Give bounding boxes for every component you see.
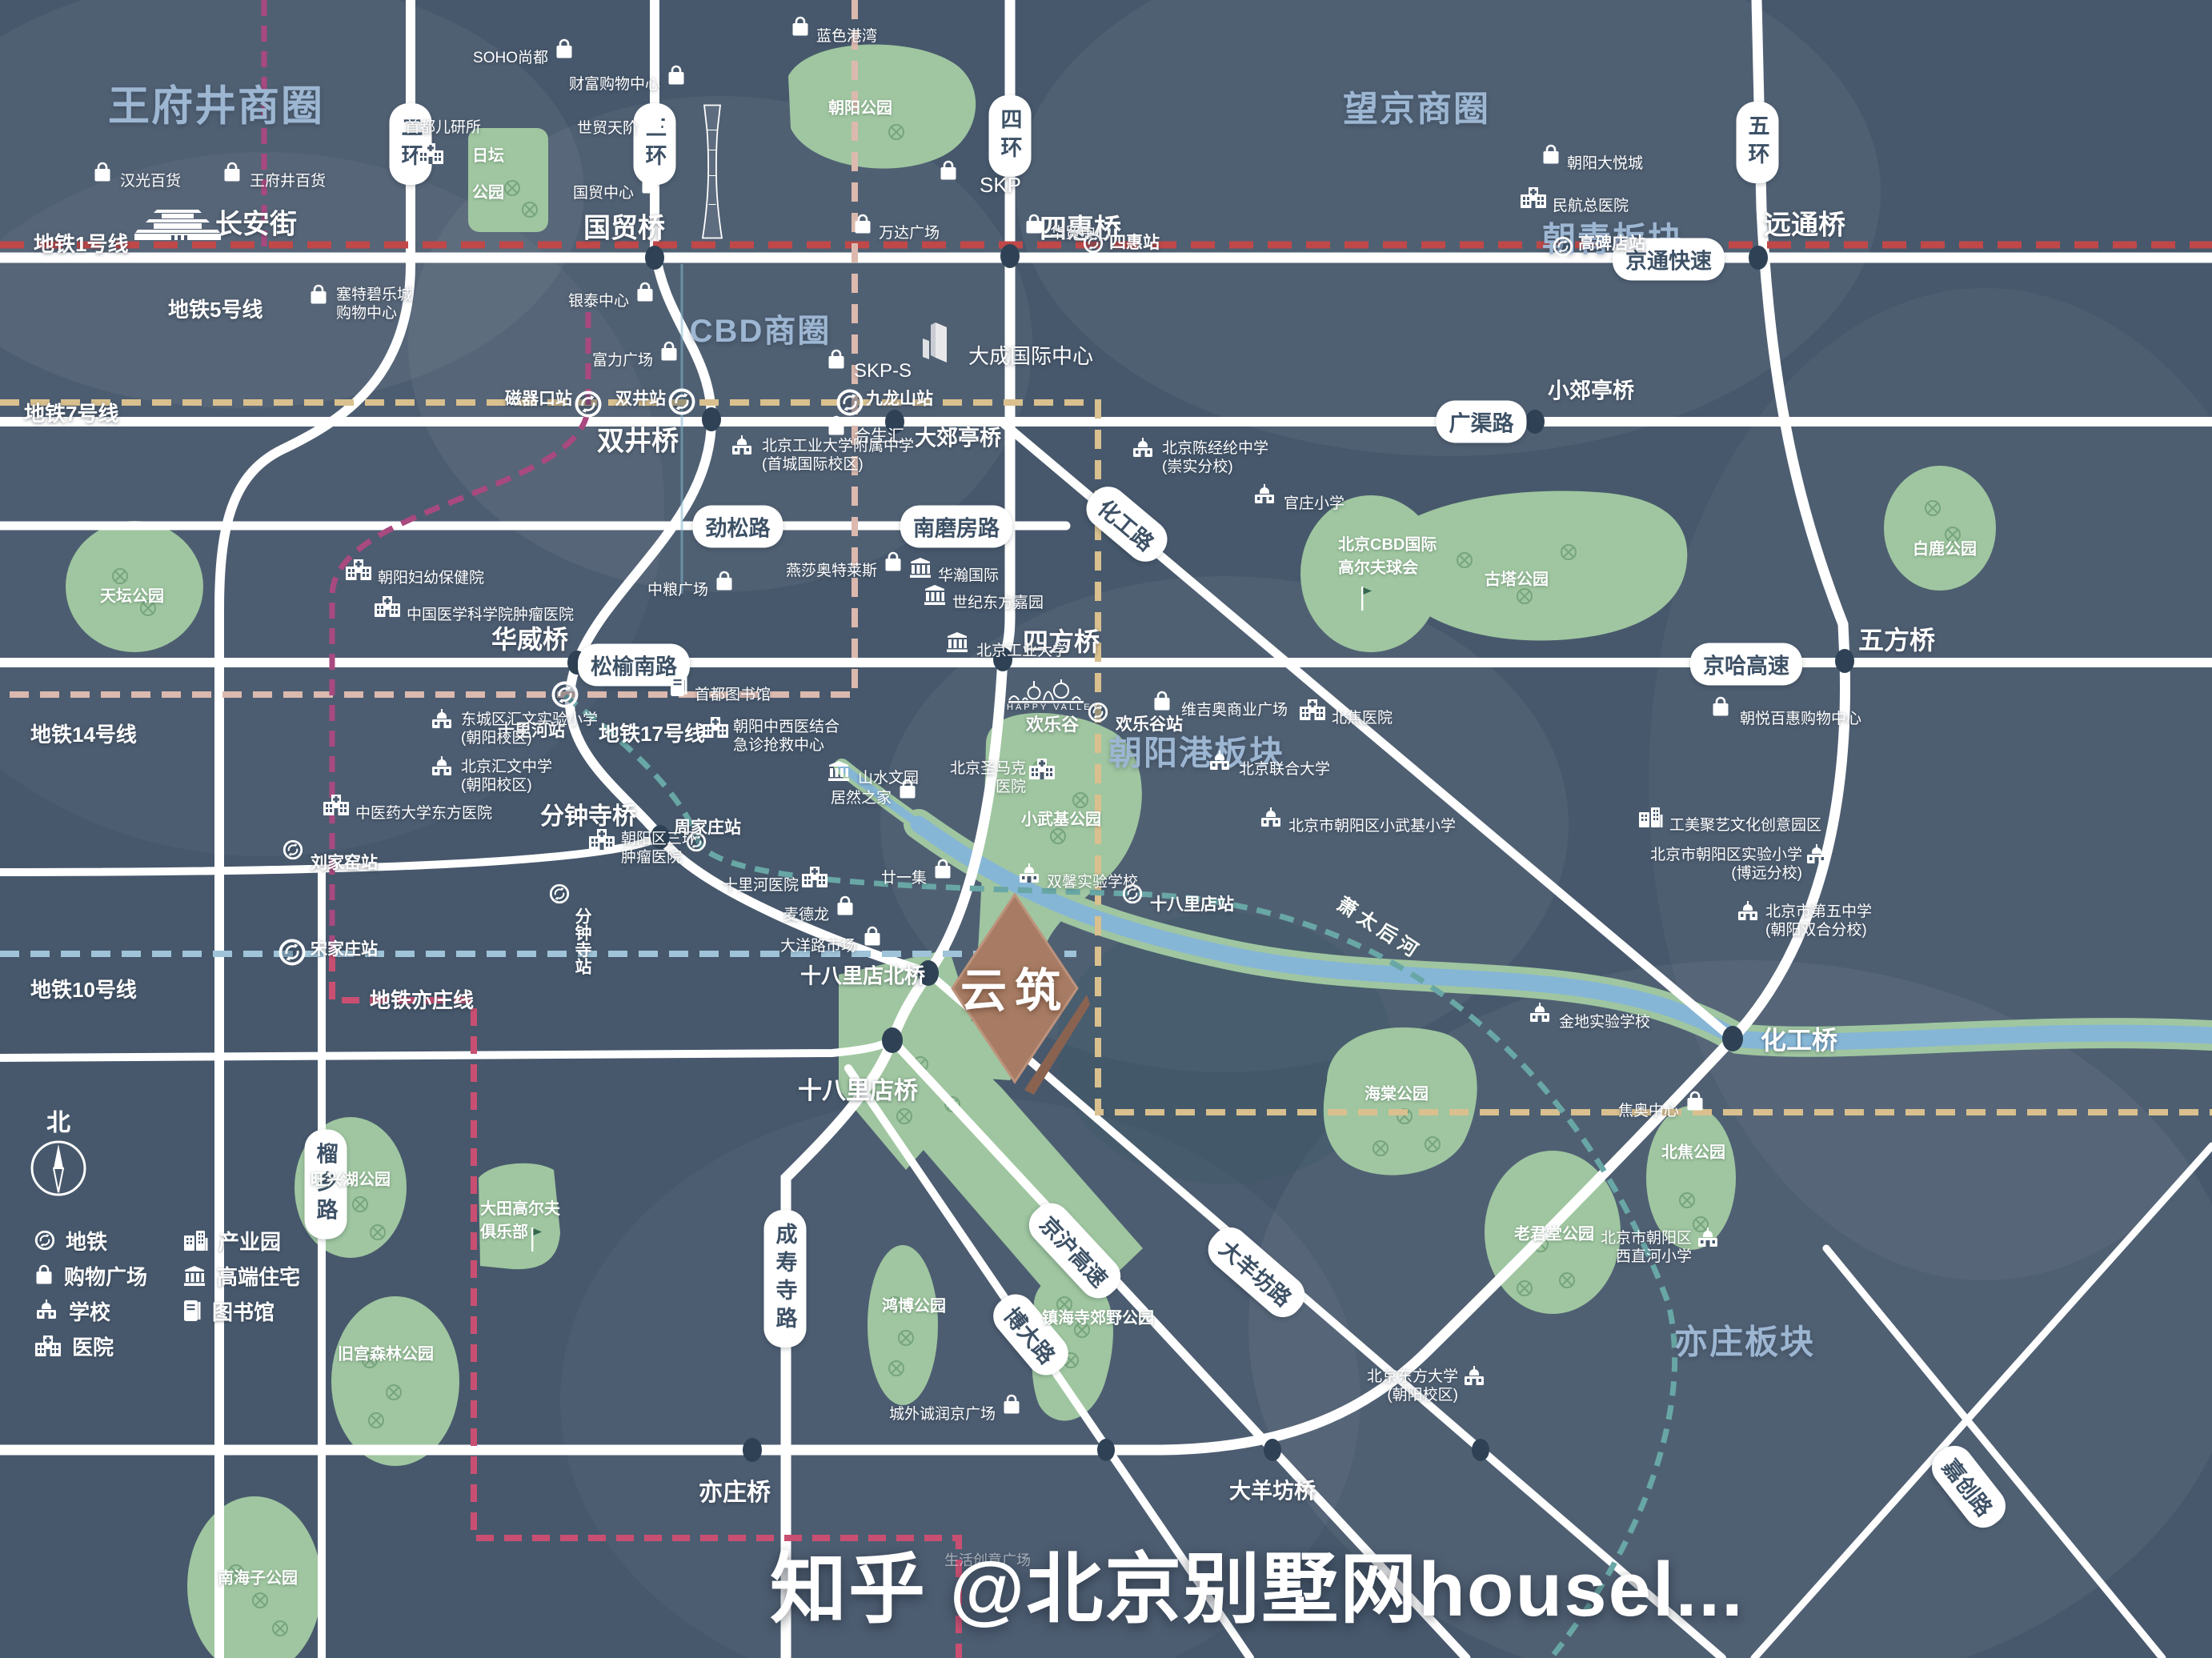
poi-label: 蓝色港湾	[816, 28, 877, 46]
station-label: 双井站	[615, 386, 666, 410]
park-label: 大田高尔夫俱乐部	[480, 1195, 560, 1242]
res-icon	[182, 1264, 207, 1287]
road-pill-vertical: 五环	[1737, 102, 1779, 183]
poi-label: 北京工业大学	[976, 643, 1068, 661]
location-map: 王府井商圈CBD商圈望京商圈朝青板块朝阳港板块亦庄板块二环三环四环五环榴乡路成寿…	[0, 0, 2212, 1658]
compass-north-label: 北	[22, 1103, 94, 1138]
park-label: 小武基公园	[1021, 807, 1101, 830]
bag-icon	[1685, 1091, 1705, 1113]
bridge-label: 五方桥	[1858, 620, 1935, 657]
school-icon	[1207, 749, 1232, 775]
poi-label: 北京工业大学附属中学(首城国际校区)	[762, 438, 914, 475]
legend-label: 产业园	[218, 1226, 281, 1256]
hosp-icon	[416, 142, 445, 166]
bag-icon	[897, 779, 918, 801]
legend-label: 图书馆	[212, 1296, 274, 1326]
legend-label: 医院	[72, 1332, 114, 1361]
school-icon	[34, 1298, 59, 1324]
poi-label: 北京市第五中学(朝阳双合分校)	[1765, 903, 1872, 940]
school-icon	[1130, 436, 1156, 462]
station-label: 欢乐谷站	[1116, 711, 1183, 735]
poi-label: 维吉奥商业广场	[1181, 702, 1288, 720]
poi-label: SOHO尚都	[473, 50, 548, 68]
poi-label: 北京市朝阳区西直河小学	[1601, 1230, 1692, 1267]
poi-label: 北京汇文中学(朝阳校区)	[461, 759, 552, 795]
poi-label: 朝阳区三环肿瘤医院	[621, 831, 697, 867]
poi-label: 朝阳中西医结合急诊抢救中心	[733, 719, 840, 755]
bridge-label: 十八里店北桥	[800, 960, 925, 990]
poi-label: 燕莎奥特莱斯	[786, 563, 877, 581]
poi-label: 富力广场	[592, 352, 653, 370]
bridge-label: 长安街	[215, 202, 297, 242]
watermark: 知乎 @北京别墅网housel...	[770, 1527, 1745, 1638]
poi-label: 北京陈经纶中学(崇实分校)	[1162, 440, 1268, 477]
park-label: 北焦公园	[1661, 1139, 1725, 1163]
bridge-label: 远通桥	[1764, 203, 1845, 242]
district-label: 王府井商圈	[108, 73, 324, 133]
interchange-station-icon	[550, 679, 580, 710]
bridge-label: 华威桥	[491, 619, 568, 656]
park-label: 朝阳公园	[828, 95, 892, 118]
bag-icon	[1001, 1394, 1022, 1416]
station-label: 四惠站	[1109, 230, 1160, 254]
road-pill: 京哈高速	[1690, 643, 1802, 686]
road-pill-rotated: 化工路	[1079, 479, 1176, 569]
bag-icon	[92, 162, 113, 184]
hosp-icon	[1519, 186, 1548, 210]
poi-label: 双馨实验学校	[1047, 874, 1138, 892]
poi-label: 首都图书馆	[695, 687, 771, 705]
bag-icon	[308, 284, 329, 306]
bag-icon	[826, 349, 847, 371]
legend-item: 学校	[34, 1293, 182, 1328]
park-label: 日坛公园	[472, 138, 504, 211]
hosp-icon	[1028, 757, 1056, 781]
district-label: 望京商圈	[1343, 80, 1490, 131]
station-label: 九龙山站	[866, 386, 933, 410]
b3d-icon	[920, 318, 961, 367]
road-pill-rotated: 嘉创路	[1924, 1438, 2013, 1536]
hosp-icon	[34, 1334, 62, 1358]
bag-icon	[1152, 691, 1172, 713]
poi-label: 北京东方大学(朝阳校区)	[1367, 1368, 1458, 1405]
legend-item: 购物广场	[34, 1258, 182, 1293]
interchange-station-icon	[277, 937, 307, 967]
park-label: 老君堂公园	[1514, 1221, 1594, 1244]
poi-label: 朝悦百惠购物中心	[1740, 711, 1861, 729]
ind-icon	[1637, 805, 1664, 829]
interchange-station-icon	[835, 387, 865, 418]
school-icon	[1695, 1226, 1721, 1252]
interchange-station-icon	[573, 389, 603, 419]
poi-label: 朝阳妇幼保健院	[378, 570, 484, 588]
map-legend: 地铁产业园购物广场高端住宅学校图书馆医院	[34, 1223, 330, 1364]
hosp-icon	[701, 715, 730, 739]
hv-icon	[1007, 675, 1087, 704]
poi-label: 焦奥中心	[1618, 1103, 1679, 1121]
park-label: 天坛公园	[100, 583, 164, 607]
poi-label: 大洋路市场	[780, 938, 856, 956]
station-label: 分钟寺站	[570, 907, 594, 975]
station-label: 磁器口站	[505, 386, 572, 410]
station-label: 宋家庄站	[311, 936, 378, 960]
station-label: 高碑店站	[1578, 230, 1645, 254]
bag-icon	[1541, 144, 1561, 166]
legend-item: 产业园	[182, 1223, 330, 1258]
poi-label: 万达广场	[879, 225, 940, 243]
park-label: 海棠公园	[1364, 1081, 1429, 1104]
metro-line-label: 地铁7号线	[24, 398, 118, 427]
park-label: 古塔公园	[1485, 567, 1549, 590]
property-name: 云筑	[960, 953, 1069, 1020]
res-icon	[826, 759, 852, 782]
lib-icon	[182, 1298, 202, 1324]
road-pill: 南磨房路	[900, 506, 1012, 548]
school-icon	[429, 755, 455, 780]
road-pill-rotated: 京沪高速	[1021, 1195, 1128, 1307]
poi-label: 大成国际中心	[968, 344, 1093, 369]
legend-item: 高端住宅	[182, 1258, 330, 1293]
bag-icon	[938, 160, 959, 182]
bag-icon	[1710, 696, 1731, 719]
bag-icon	[714, 571, 735, 593]
legend-item: 图书馆	[182, 1293, 330, 1328]
poi-label: 塞特碧乐城购物中心	[336, 286, 412, 323]
bag-icon	[222, 162, 242, 184]
poi-label: 世纪东方嘉园	[952, 595, 1044, 613]
bridge-label: 十八里店桥	[798, 1071, 918, 1106]
school-icon	[1735, 899, 1761, 925]
bag-icon	[34, 1264, 54, 1287]
metro-line-label: 地铁亦庄线	[370, 984, 474, 1014]
bridge-label: 化工桥	[1761, 1020, 1837, 1057]
poi-label: 十里河医院	[723, 877, 799, 895]
road-pill-vertical: 成寿寺路	[764, 1210, 807, 1348]
metro-station-icon	[282, 839, 304, 861]
poi-label: 北京联合大学	[1239, 761, 1330, 779]
tower-icon	[696, 102, 728, 242]
legend-item: 地铁	[34, 1223, 182, 1258]
poi-label: 银泰中心	[568, 293, 629, 311]
school-icon	[729, 434, 755, 459]
park-label: 旧宫森林公园	[338, 1341, 434, 1364]
legend-item: 医院	[34, 1328, 182, 1364]
lib-icon	[668, 673, 689, 699]
bridge-label: 双井桥	[597, 419, 679, 459]
bag-icon	[659, 341, 679, 363]
poi-label: 世贸天阶	[577, 120, 638, 138]
station-label: 十八里店站	[1150, 891, 1234, 915]
bag-icon	[883, 551, 904, 574]
hosp-icon	[587, 827, 616, 851]
metro-line-label: 地铁1号线	[34, 228, 128, 258]
park-label: 鸿博公园	[882, 1293, 946, 1316]
poi-label: 民航总医院	[1553, 198, 1629, 216]
poi-label: 官庄小学	[1284, 495, 1344, 514]
park-label: 南海子公园	[218, 1565, 298, 1588]
metro-station-icon	[548, 883, 571, 905]
bridge-label: 小郊亭桥	[1548, 374, 1634, 405]
park-label: 旺兴湖公园	[311, 1167, 391, 1190]
hosp-icon	[800, 865, 829, 889]
bag-icon	[635, 282, 655, 304]
park-label: 北京CBD国际高尔夫球会	[1338, 531, 1437, 578]
bag-icon	[643, 109, 664, 131]
bridge-label: 亦庄桥	[699, 1472, 771, 1508]
gate-icon	[130, 203, 226, 242]
bridge-label: 分钟寺桥	[540, 796, 636, 831]
school-icon	[1527, 1001, 1553, 1027]
flag-icon	[1353, 585, 1372, 612]
metro-line-label: 地铁5号线	[168, 294, 262, 323]
interchange-station-icon	[667, 386, 697, 417]
poi-label: 财富购物中心	[569, 76, 660, 94]
poi-label: 北京市朝阳区实验小学(博远分校)	[1650, 847, 1802, 883]
metro-line-label: 地铁10号线	[30, 974, 137, 1003]
hosp-icon	[1298, 698, 1327, 722]
compass-icon	[28, 1138, 89, 1199]
poi-label: 城外诚润京广场	[889, 1406, 996, 1424]
bag-icon	[862, 926, 883, 948]
legend-label: 购物广场	[64, 1261, 147, 1291]
text-label: 欢乐谷	[1026, 715, 1079, 735]
metro-line-label: 地铁17号线	[599, 718, 705, 747]
school-icon	[1461, 1364, 1487, 1390]
poi-label: 北京圣马克医院	[950, 760, 1026, 797]
bag-icon	[639, 174, 660, 196]
bag-icon	[1024, 214, 1044, 236]
river-label: 萧太后河	[1332, 889, 1429, 965]
poi-label: 居然之家	[831, 790, 892, 808]
poi-label: 麦德龙	[783, 907, 829, 925]
bridge-label: 国贸桥	[583, 206, 665, 246]
hosp-icon	[322, 793, 351, 817]
road-pill: 劲松路	[693, 506, 783, 548]
hosp-icon	[373, 595, 402, 619]
metro-icon	[34, 1229, 56, 1252]
poi-label: 首都儿研所	[405, 119, 481, 138]
school-icon	[1252, 483, 1277, 508]
legend-label: 学校	[69, 1296, 110, 1326]
poi-label: 中医药大学东方医院	[355, 805, 492, 823]
poi-label: 金地实验学校	[1559, 1014, 1650, 1032]
poi-label: 北京市朝阳区小武基小学	[1288, 818, 1456, 836]
metro-station-icon	[1552, 235, 1574, 258]
school-icon	[1804, 843, 1829, 868]
res-icon	[922, 583, 948, 606]
metro-line-label: 地铁14号线	[30, 719, 137, 748]
compass: 北	[22, 1103, 94, 1203]
bridge-label: 大羊坊桥	[1229, 1474, 1316, 1505]
station-label: 刘家窑站	[311, 850, 378, 874]
school-icon	[1016, 862, 1042, 887]
district-label: CBD商圈	[690, 305, 832, 351]
res-icon	[944, 631, 970, 653]
poi-label: 廿一集	[881, 870, 927, 888]
poi-label: SKP-S	[854, 360, 912, 383]
poi-label: 工美聚艺文化创意园区	[1669, 817, 1821, 835]
bridge-label: 大郊亭桥	[915, 421, 1001, 452]
bag-icon	[835, 895, 856, 918]
road-pill-vertical: 四环	[989, 95, 1032, 177]
road-pill-rotated: 大羊坊路	[1200, 1219, 1312, 1325]
poi-label: 中国医学科学院肿瘤医院	[407, 607, 574, 625]
res-icon	[908, 556, 933, 579]
poi-label: 华贸中心	[1050, 225, 1111, 243]
bag-icon	[666, 65, 687, 87]
road-pill-rotated: 博大路	[985, 1287, 1076, 1384]
ind-icon	[182, 1228, 209, 1252]
poi-label: 中粮广场	[647, 582, 708, 600]
text-label: HAPPY VALLEY	[1007, 703, 1100, 713]
district-label: 亦庄板块	[1674, 1316, 1815, 1364]
poi-label: 东城区汇文实验小学(朝阳校区)	[461, 711, 598, 748]
poi-label: 国贸中心	[573, 185, 634, 203]
school-icon	[1258, 806, 1284, 831]
legend-label: 地铁	[66, 1226, 107, 1256]
bag-icon	[790, 16, 811, 38]
poi-label: SKP	[980, 173, 1021, 198]
school-icon	[429, 707, 455, 733]
hosp-icon	[344, 558, 373, 582]
legend-label: 高端住宅	[217, 1261, 300, 1291]
park-label: 镇海寺郊野公园	[1042, 1305, 1154, 1328]
road-pill: 广渠路	[1437, 401, 1527, 443]
poi-label: 北焦医院	[1332, 710, 1393, 728]
bag-icon	[826, 415, 847, 438]
marker-layer: 王府井商圈CBD商圈望京商圈朝青板块朝阳港板块亦庄板块二环三环四环五环榴乡路成寿…	[0, 0, 2212, 1658]
poi-label: 汉光百货	[120, 173, 181, 191]
poi-label: 朝阳大悦城	[1567, 155, 1643, 174]
poi-label: 王府井百货	[250, 173, 326, 191]
bag-icon	[554, 38, 575, 61]
park-label: 白鹿公园	[1913, 536, 1977, 559]
bag-icon	[852, 214, 873, 236]
bag-icon	[932, 859, 953, 881]
